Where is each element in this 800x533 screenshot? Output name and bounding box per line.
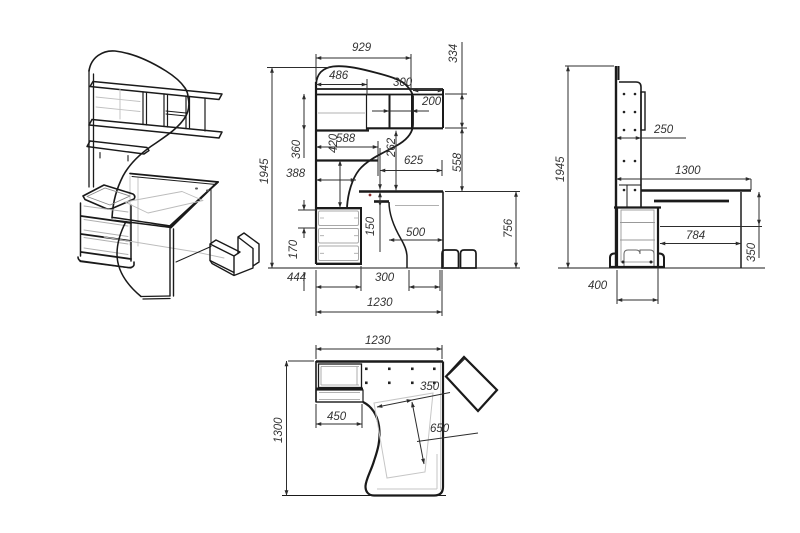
svg-text:929: 929 <box>352 42 372 54</box>
svg-text:250: 250 <box>653 124 674 136</box>
svg-text:1945: 1945 <box>555 156 567 182</box>
svg-text:334: 334 <box>448 44 460 63</box>
svg-text:1230: 1230 <box>367 297 393 309</box>
svg-text:486: 486 <box>329 70 349 82</box>
svg-text:1300: 1300 <box>273 417 285 443</box>
svg-text:1230: 1230 <box>365 335 391 347</box>
svg-text:262: 262 <box>386 137 398 158</box>
svg-text:360: 360 <box>291 139 303 159</box>
svg-text:170: 170 <box>288 239 300 259</box>
svg-text:400: 400 <box>588 280 608 292</box>
svg-text:756: 756 <box>503 218 515 238</box>
svg-text:350: 350 <box>746 242 758 262</box>
svg-text:625: 625 <box>404 155 424 167</box>
svg-text:350: 350 <box>420 381 440 393</box>
svg-text:300: 300 <box>375 272 395 284</box>
svg-text:388: 388 <box>286 168 306 180</box>
svg-text:1945: 1945 <box>259 158 271 184</box>
svg-text:558: 558 <box>452 152 464 172</box>
svg-text:300: 300 <box>393 77 413 89</box>
svg-text:150: 150 <box>365 216 377 236</box>
svg-text:450: 450 <box>327 411 347 423</box>
svg-text:200: 200 <box>421 96 442 108</box>
svg-text:420: 420 <box>328 133 340 153</box>
svg-text:650: 650 <box>430 423 450 435</box>
svg-text:784: 784 <box>686 230 705 242</box>
svg-text:500: 500 <box>406 227 426 239</box>
svg-text:1300: 1300 <box>675 165 701 177</box>
svg-text:444: 444 <box>287 272 306 284</box>
